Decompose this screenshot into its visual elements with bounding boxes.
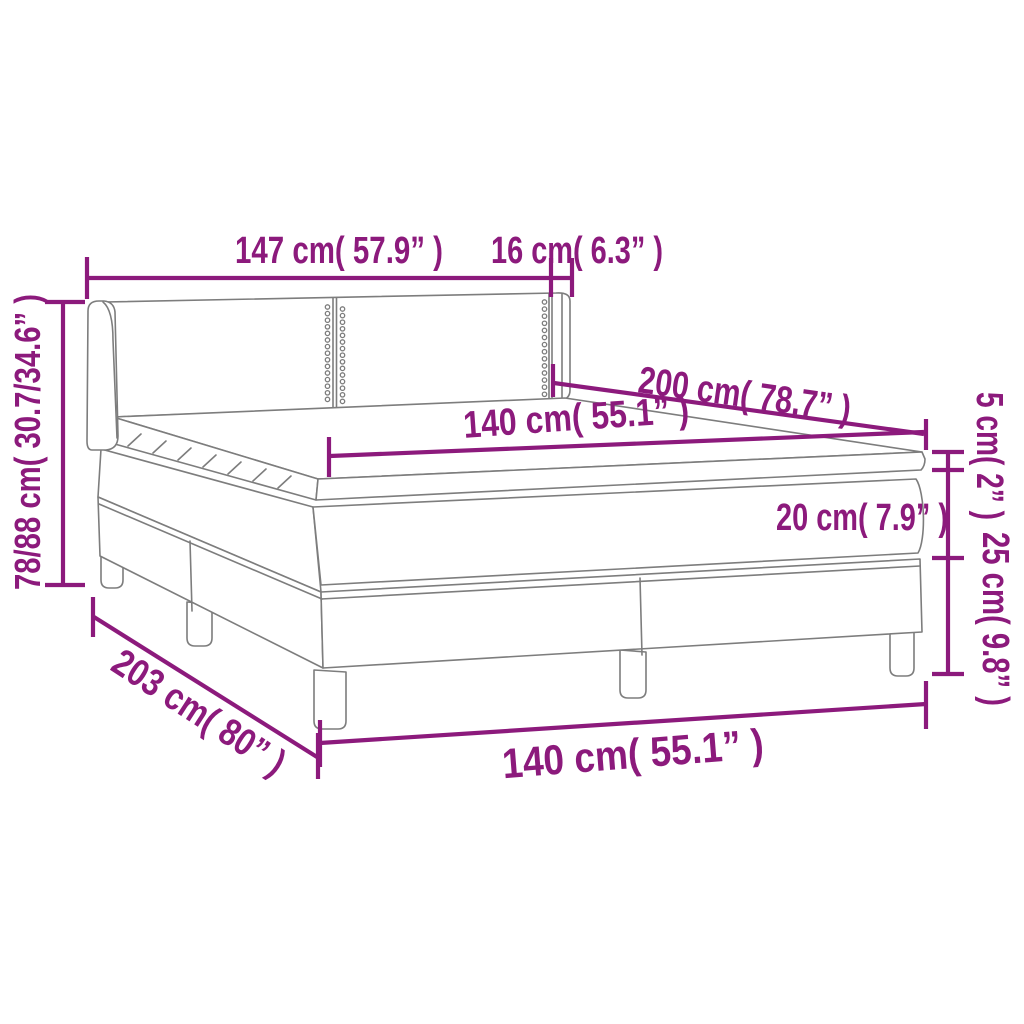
headboard — [104, 293, 570, 417]
headboard-wing — [87, 301, 118, 450]
dim-base-height: 25 cm( 9.8” ) — [974, 532, 1016, 706]
dim-base-length: 203 cm( 80” ) — [104, 641, 293, 784]
dim-wing-depth: 16 cm( 6.3” ) — [491, 230, 663, 272]
nailhead-strip-left — [325, 305, 329, 402]
diagram-canvas: 147 cm( 57.9” ) 16 cm( 6.3” ) 78/88 cm( … — [0, 0, 1024, 1024]
nailhead-strip-left-2 — [340, 307, 344, 404]
dim-mattress-height: 20 cm( 7.9” ) — [776, 497, 948, 539]
dim-headboard-width: 147 cm( 57.9” ) — [235, 230, 443, 272]
dim-bed-height: 78/88 cm( 30.7/34.6” ) — [7, 294, 48, 590]
bed-leg — [890, 628, 914, 676]
bed-leg — [620, 650, 646, 698]
bed-dimension-diagram: 147 cm( 57.9” ) 16 cm( 6.3” ) 78/88 cm( … — [0, 0, 1024, 1024]
dim-topper-height: 5 cm( 2” ) — [968, 392, 1010, 520]
